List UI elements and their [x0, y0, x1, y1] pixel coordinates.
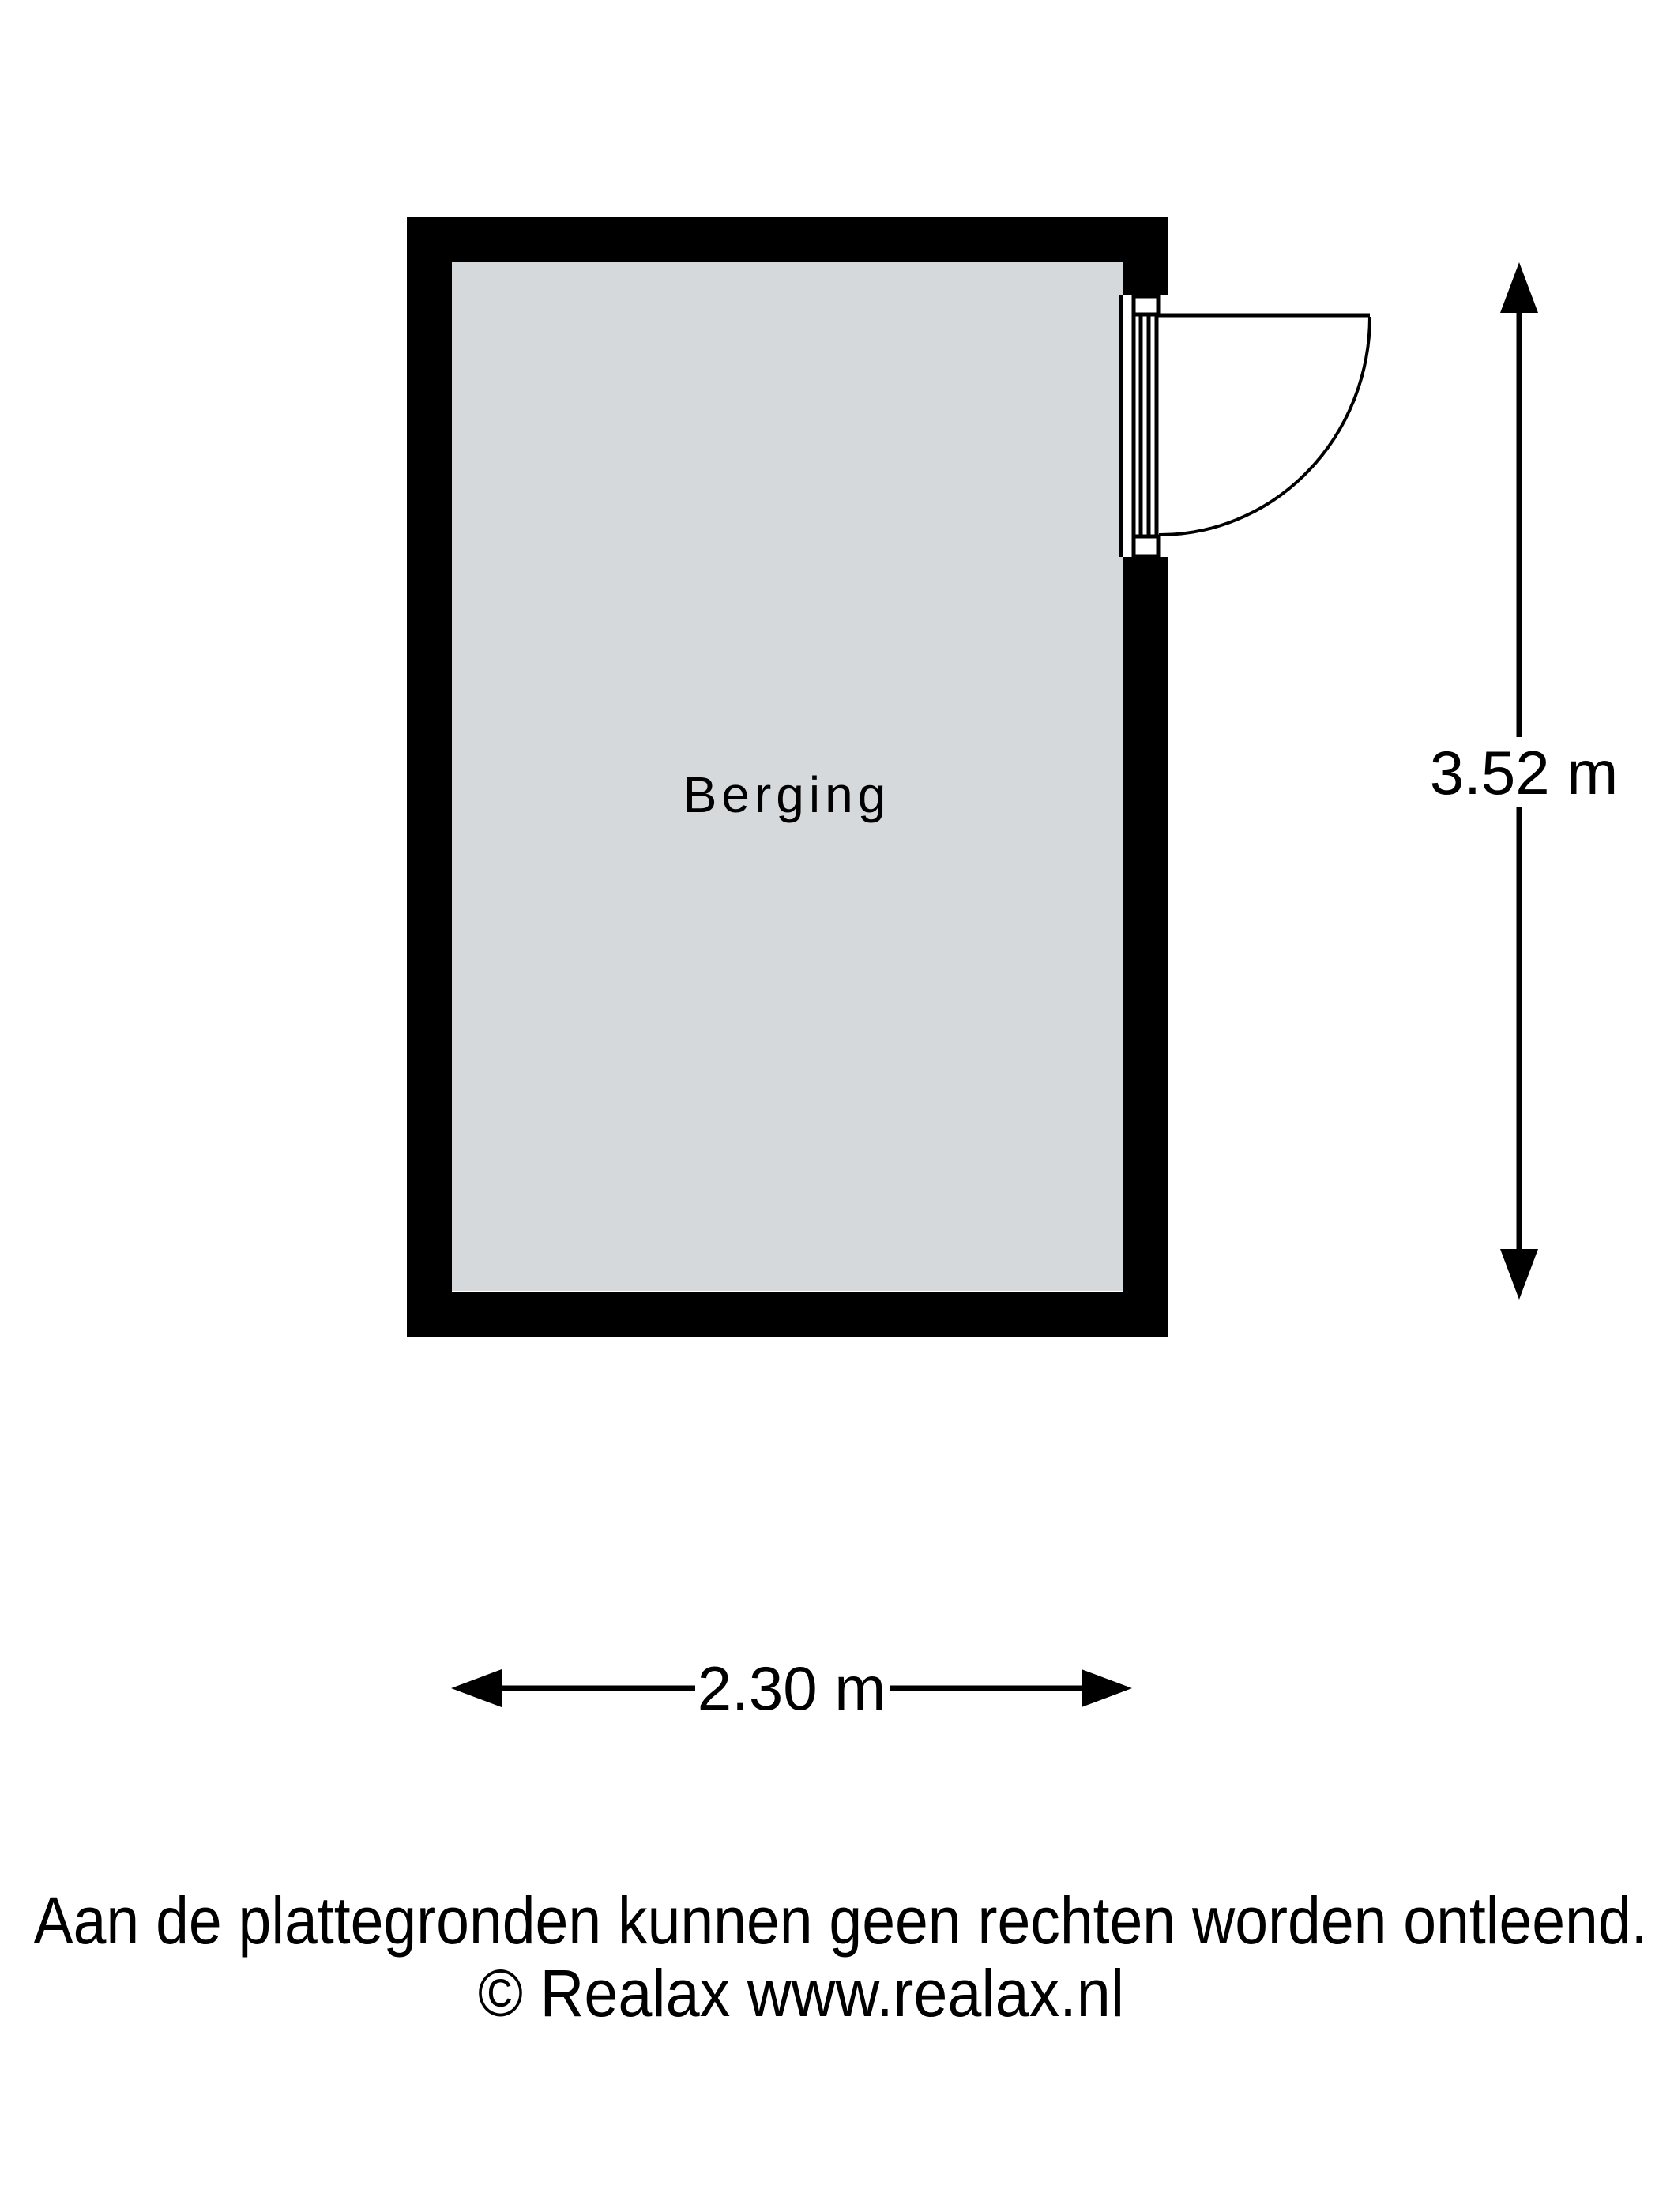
- floorplan-canvas: 3.52 m 2.30 m Berging Aan de plattegrond…: [0, 0, 1659, 2212]
- door-frame-head: [1134, 296, 1158, 314]
- wall-left: [407, 217, 452, 1337]
- room-name-label: Berging: [683, 766, 891, 823]
- wall-top: [407, 217, 1168, 262]
- door-swing-arc: [1159, 317, 1370, 535]
- disclaimer-line-2: © Realax www.realax.nl: [478, 1956, 1124, 2030]
- dimension-horizontal-label: 2.30 m: [698, 1653, 886, 1723]
- door-frame-sill: [1134, 536, 1158, 556]
- wall-right-upper-jamb: [1123, 217, 1168, 295]
- arrowhead-down-icon: [1500, 1249, 1538, 1300]
- disclaimer-line-1: Aan de plattegronden kunnen geen rechten…: [34, 1883, 1648, 1958]
- floorplan-page: 3.52 m 2.30 m Berging Aan de plattegrond…: [0, 0, 1659, 2212]
- arrowhead-up-icon: [1500, 262, 1538, 313]
- arrowhead-left-icon: [451, 1669, 502, 1707]
- wall-bottom: [407, 1292, 1168, 1337]
- dimension-horizontal: 2.30 m: [451, 1653, 1132, 1723]
- arrowhead-right-icon: [1082, 1669, 1132, 1707]
- wall-right-lower: [1123, 557, 1168, 1337]
- door-leaf-panel: [1134, 314, 1157, 536]
- dimension-vertical: 3.52 m: [1430, 262, 1618, 1300]
- dimension-vertical-label: 3.52 m: [1430, 738, 1618, 807]
